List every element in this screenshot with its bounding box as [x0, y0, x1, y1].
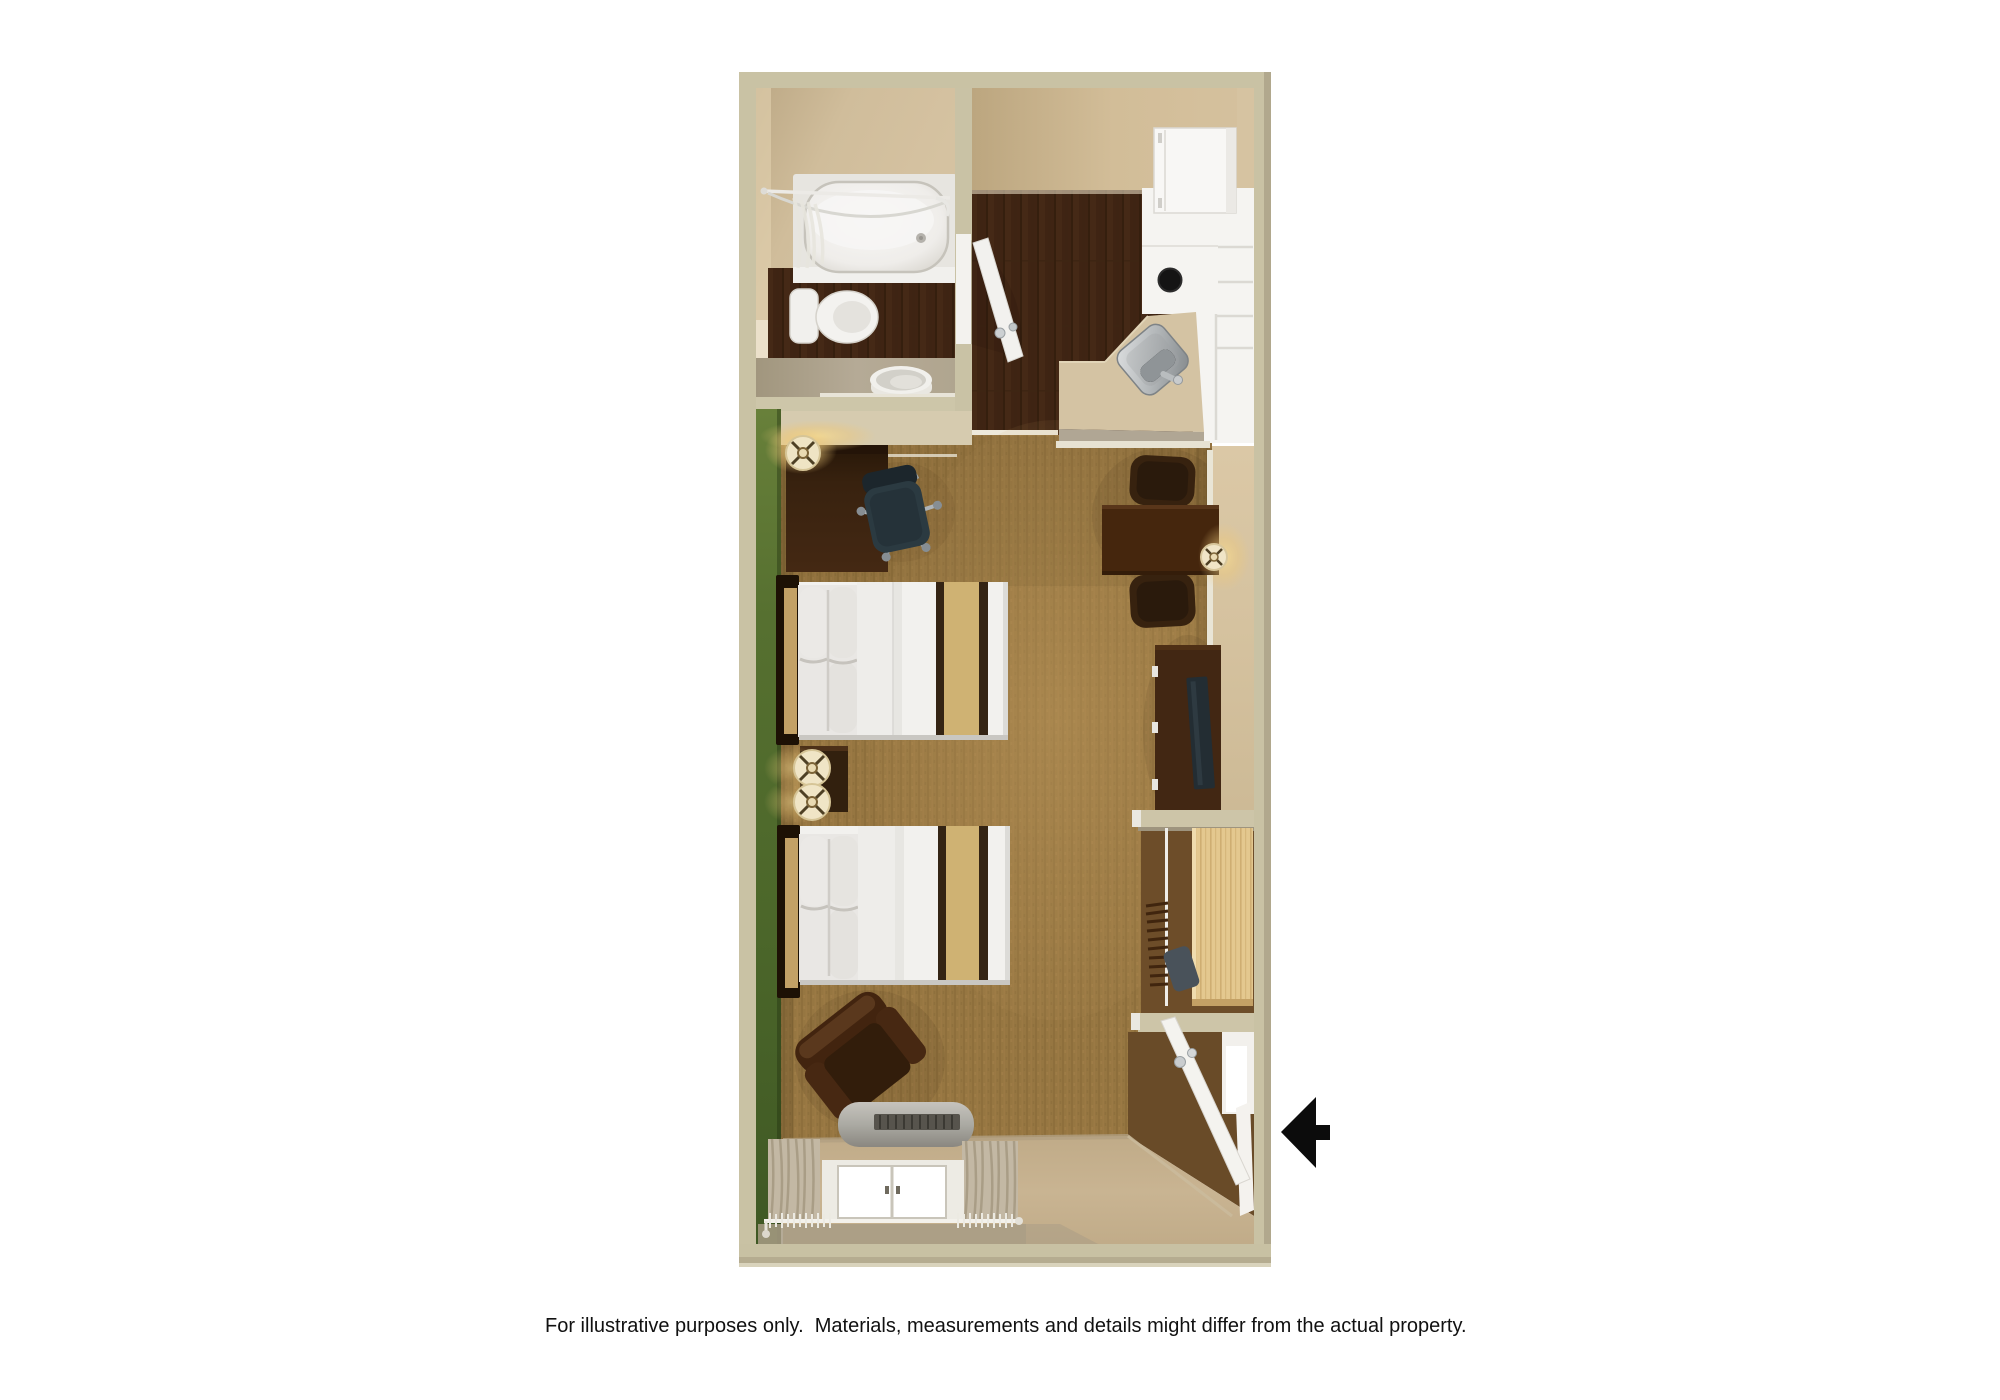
svg-text:For illustrative purposes only: For illustrative purposes only. Material… — [545, 1315, 1467, 1337]
